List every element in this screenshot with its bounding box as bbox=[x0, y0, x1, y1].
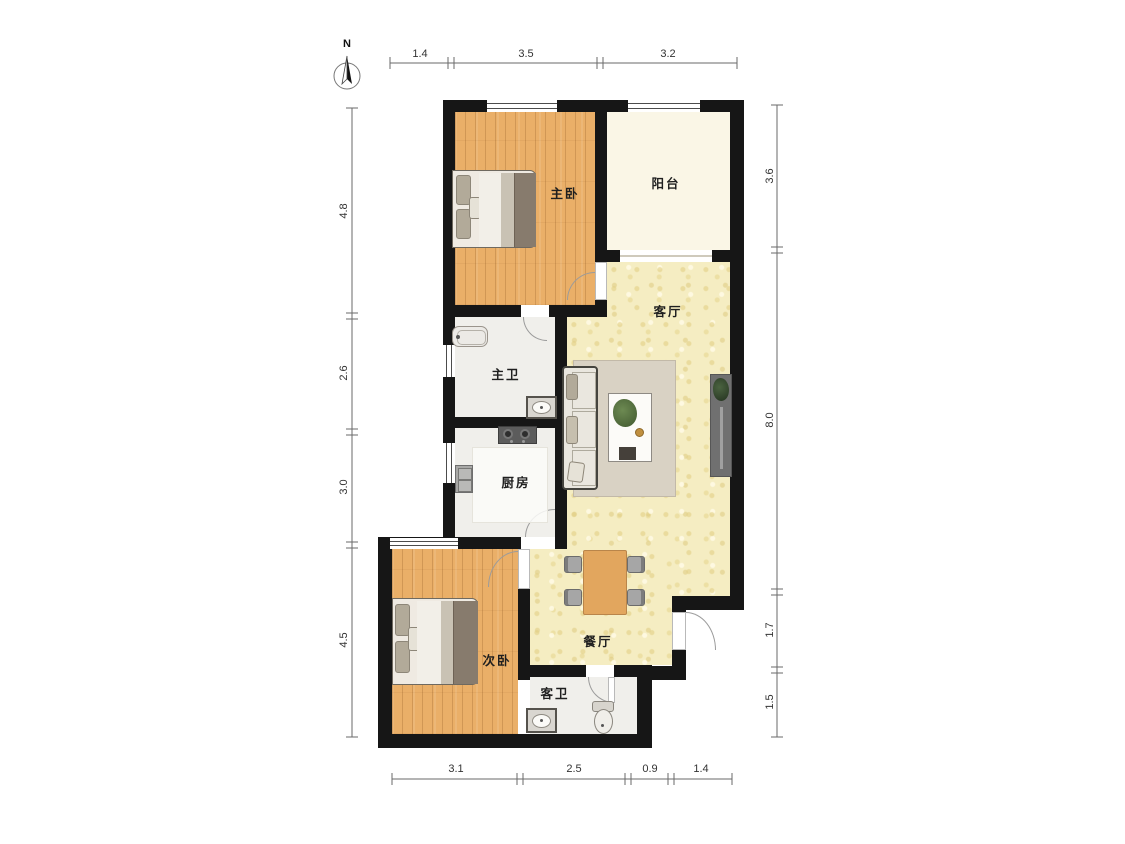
dimension-lines bbox=[0, 0, 1125, 844]
dim-bottom-4: 1.4 bbox=[686, 763, 716, 775]
compass-north-label: N bbox=[332, 38, 362, 50]
dim-bottom-3: 0.9 bbox=[635, 763, 665, 775]
dim-right-2: 8.0 bbox=[764, 405, 776, 435]
dimension-line bbox=[352, 63, 777, 779]
compass-icon bbox=[334, 56, 360, 89]
floor-plan-page: { "compass": { "label": "N" }, "rooms": … bbox=[0, 0, 1125, 844]
dim-left-2: 2.6 bbox=[338, 358, 350, 388]
dim-top-2: 3.5 bbox=[511, 48, 541, 60]
dim-right-1: 3.6 bbox=[764, 161, 776, 191]
dim-left-3: 3.0 bbox=[338, 472, 350, 502]
dim-left-1: 4.8 bbox=[338, 196, 350, 226]
dim-bottom-1: 3.1 bbox=[441, 763, 471, 775]
dim-top-3: 3.2 bbox=[653, 48, 683, 60]
dim-right-3: 1.7 bbox=[764, 615, 776, 645]
dim-bottom-2: 2.5 bbox=[559, 763, 589, 775]
dim-top-1: 1.4 bbox=[405, 48, 435, 60]
dim-right-4: 1.5 bbox=[764, 687, 776, 717]
dim-left-4: 4.5 bbox=[338, 625, 350, 655]
